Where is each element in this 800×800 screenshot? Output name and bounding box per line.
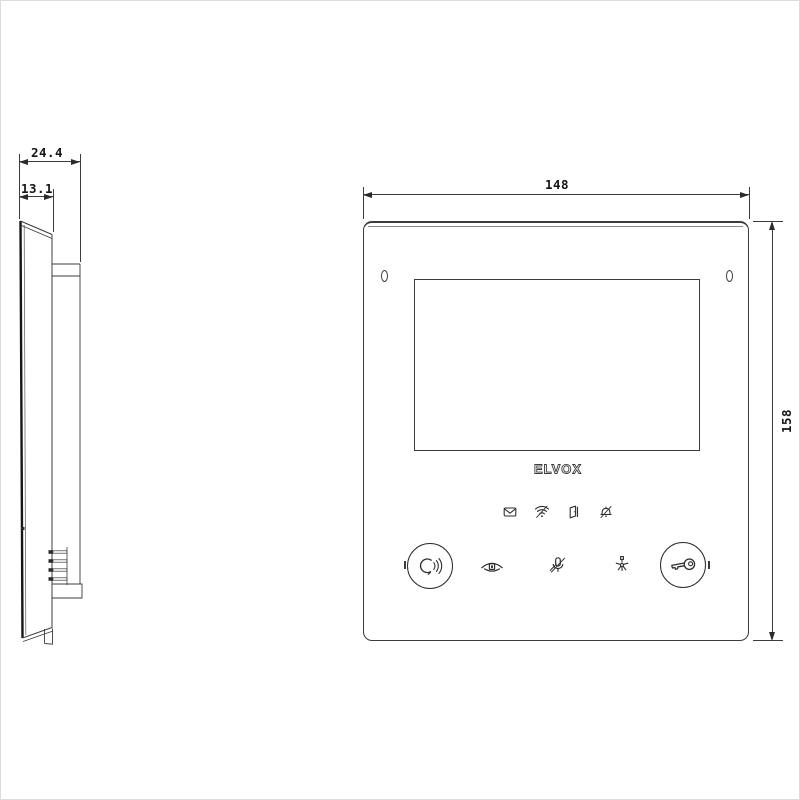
panel-top-edge-line xyxy=(368,226,743,227)
arrowhead-up-icon xyxy=(769,221,775,230)
wifi-icon xyxy=(534,504,550,520)
screw-hole-left xyxy=(381,270,388,282)
panel-side-mark xyxy=(404,561,406,569)
arrowhead-down-icon xyxy=(769,632,775,641)
side-profile-outline xyxy=(15,217,87,647)
door-open-icon xyxy=(566,504,582,520)
extension-line xyxy=(53,189,54,232)
dim-label-height: 158 xyxy=(780,401,794,441)
dim-label-total-depth: 24.4 xyxy=(25,146,69,160)
display-screen xyxy=(414,279,700,451)
extension-line xyxy=(363,187,364,219)
arrowhead-left-icon xyxy=(363,192,372,198)
extension-line xyxy=(753,640,783,641)
key-icon xyxy=(668,555,698,575)
dim-label-width: 148 xyxy=(532,178,582,192)
arrowhead-right-icon xyxy=(71,159,80,165)
extension-line xyxy=(80,154,81,262)
extension-line xyxy=(753,221,783,222)
monitor-front-panel: ELVOX xyxy=(363,221,749,641)
terminal-pins xyxy=(49,547,68,585)
dim-line-width xyxy=(363,194,749,195)
dim-line-height xyxy=(772,223,773,639)
arrowhead-right-icon xyxy=(740,192,749,198)
screw-hole-right xyxy=(726,270,733,282)
stair-light-icon xyxy=(612,555,632,575)
voicemail-icon xyxy=(502,504,518,520)
extension-line xyxy=(749,187,750,219)
talk-button xyxy=(407,543,453,589)
mic-mute-icon xyxy=(548,555,568,575)
brand-logo-text: ELVOX xyxy=(534,462,582,477)
panel-side-mark xyxy=(708,561,710,569)
bell-muted-icon xyxy=(598,504,614,520)
technical-drawing: 24.4 13.1 148 158 xyxy=(0,0,800,800)
arrowhead-right-icon xyxy=(44,194,53,200)
self-start-eye-icon xyxy=(480,558,504,575)
door-release-key-button xyxy=(660,542,706,588)
arrowhead-left-icon xyxy=(19,159,28,165)
speak-icon xyxy=(416,554,444,578)
brand-logo: ELVOX xyxy=(526,461,590,477)
arrowhead-left-icon xyxy=(19,194,28,200)
